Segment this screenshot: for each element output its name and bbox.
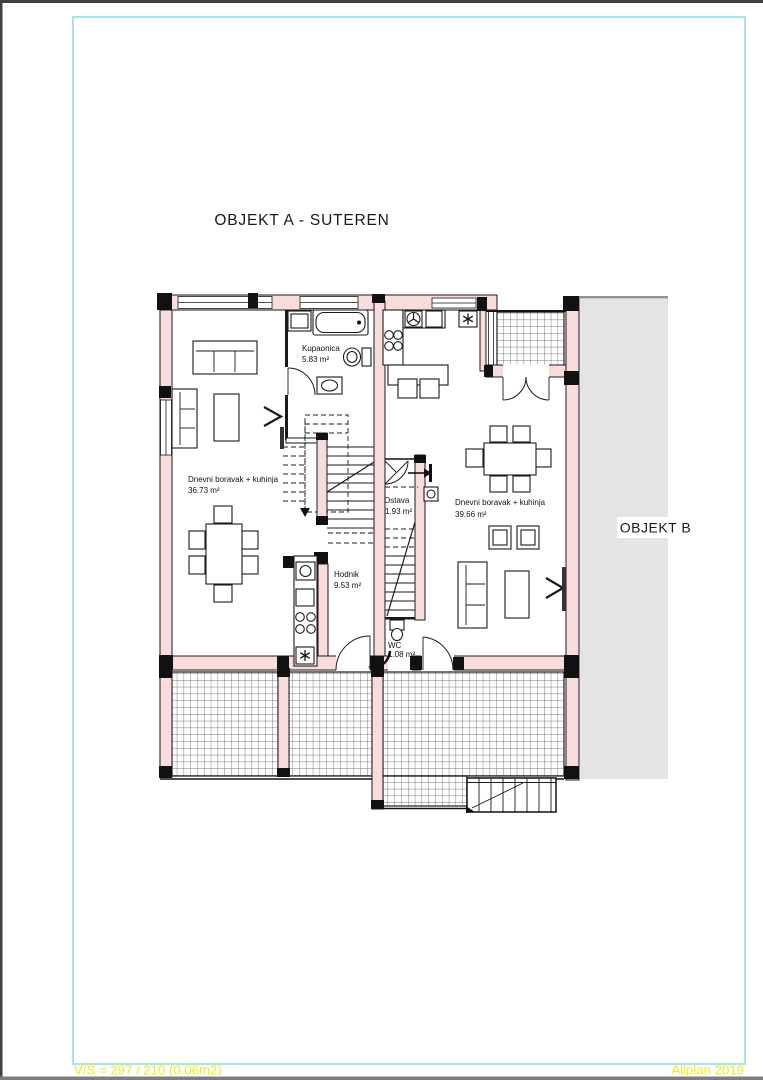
- shaft-sink-icon: [424, 487, 438, 501]
- entry-chevron-left-unit: [264, 407, 281, 426]
- washing-machine-icon: [288, 311, 311, 331]
- sink-icon: [317, 377, 342, 394]
- entry-chevron-right-unit: [546, 578, 563, 598]
- room-area-ostava: 1.93 m²: [385, 507, 412, 516]
- room-area-dnevni-left: 36.73 m²: [188, 486, 220, 495]
- right-wall-window: [562, 567, 566, 611]
- door-openings: [336, 365, 549, 671]
- coffee-table: [505, 571, 529, 618]
- kitchen-right: [383, 310, 477, 398]
- sofa: [193, 341, 257, 374]
- room-area-wc: 1.08 m²: [388, 650, 415, 659]
- page-title: OBJEKT A - SUTEREN: [214, 212, 389, 229]
- stair-down-arrow: [300, 508, 310, 517]
- furniture-right-unit: [458, 426, 551, 628]
- floorplan-drawing: OBJEKT A - SUTEREN OBJEKT B: [0, 0, 763, 1080]
- bathroom-door-arc: [288, 368, 315, 395]
- room-label-hodnik: Hodnik: [334, 570, 360, 579]
- armchair: [489, 526, 511, 549]
- dining-set: [466, 426, 551, 492]
- doors: [336, 377, 549, 670]
- scale-annotation: V/Š = 297 / 210 (0.06m2): [74, 1063, 222, 1078]
- sofa: [458, 562, 487, 628]
- stove-symbol-icon: [459, 311, 477, 327]
- room-label-wc: WC: [388, 641, 402, 650]
- stool: [420, 379, 439, 398]
- dining-set: [189, 506, 258, 602]
- wc-partition: [385, 617, 415, 620]
- armchair: [517, 526, 539, 549]
- room-label-dnevni-left: Dnevni boravak + kuhinja: [188, 475, 279, 484]
- stool: [398, 379, 417, 398]
- room-area-dnevni-right: 39.66 m²: [455, 510, 487, 519]
- room-area-kupaonica: 5.83 m²: [302, 355, 329, 364]
- objekt-b-footprint: OBJEKT B: [578, 296, 694, 779]
- exterior-stairs: [466, 778, 556, 813]
- coffee-table: [214, 394, 239, 441]
- plan-sheet: OBJEKT A - SUTEREN OBJEKT B: [0, 0, 763, 1080]
- furniture-left-unit: [172, 341, 258, 602]
- room-label-kupaonica: Kupaonica: [302, 344, 340, 353]
- sofa-side: [172, 389, 197, 448]
- allplan-watermark: Allplan 2019: [671, 1063, 744, 1078]
- staircase-left: [283, 415, 374, 528]
- bathroom: [285, 310, 371, 443]
- objekt-b-label: OBJEKT B: [620, 520, 691, 536]
- room-area-hodnik: 9.53 m²: [334, 581, 361, 590]
- room-label-ostava: Ostava: [384, 496, 410, 505]
- room-label-dnevni-right: Dnevni boravak + kuhinja: [455, 498, 546, 507]
- bathtub-icon: [313, 310, 368, 335]
- wc-toilet-icon: [390, 620, 404, 641]
- toilet-icon: [344, 348, 372, 366]
- hallway-walls: [314, 533, 374, 656]
- kitchen-left: [283, 556, 317, 666]
- room-labels: Kupaonica 5.83 m² Dnevni boravak + kuhin…: [188, 344, 546, 659]
